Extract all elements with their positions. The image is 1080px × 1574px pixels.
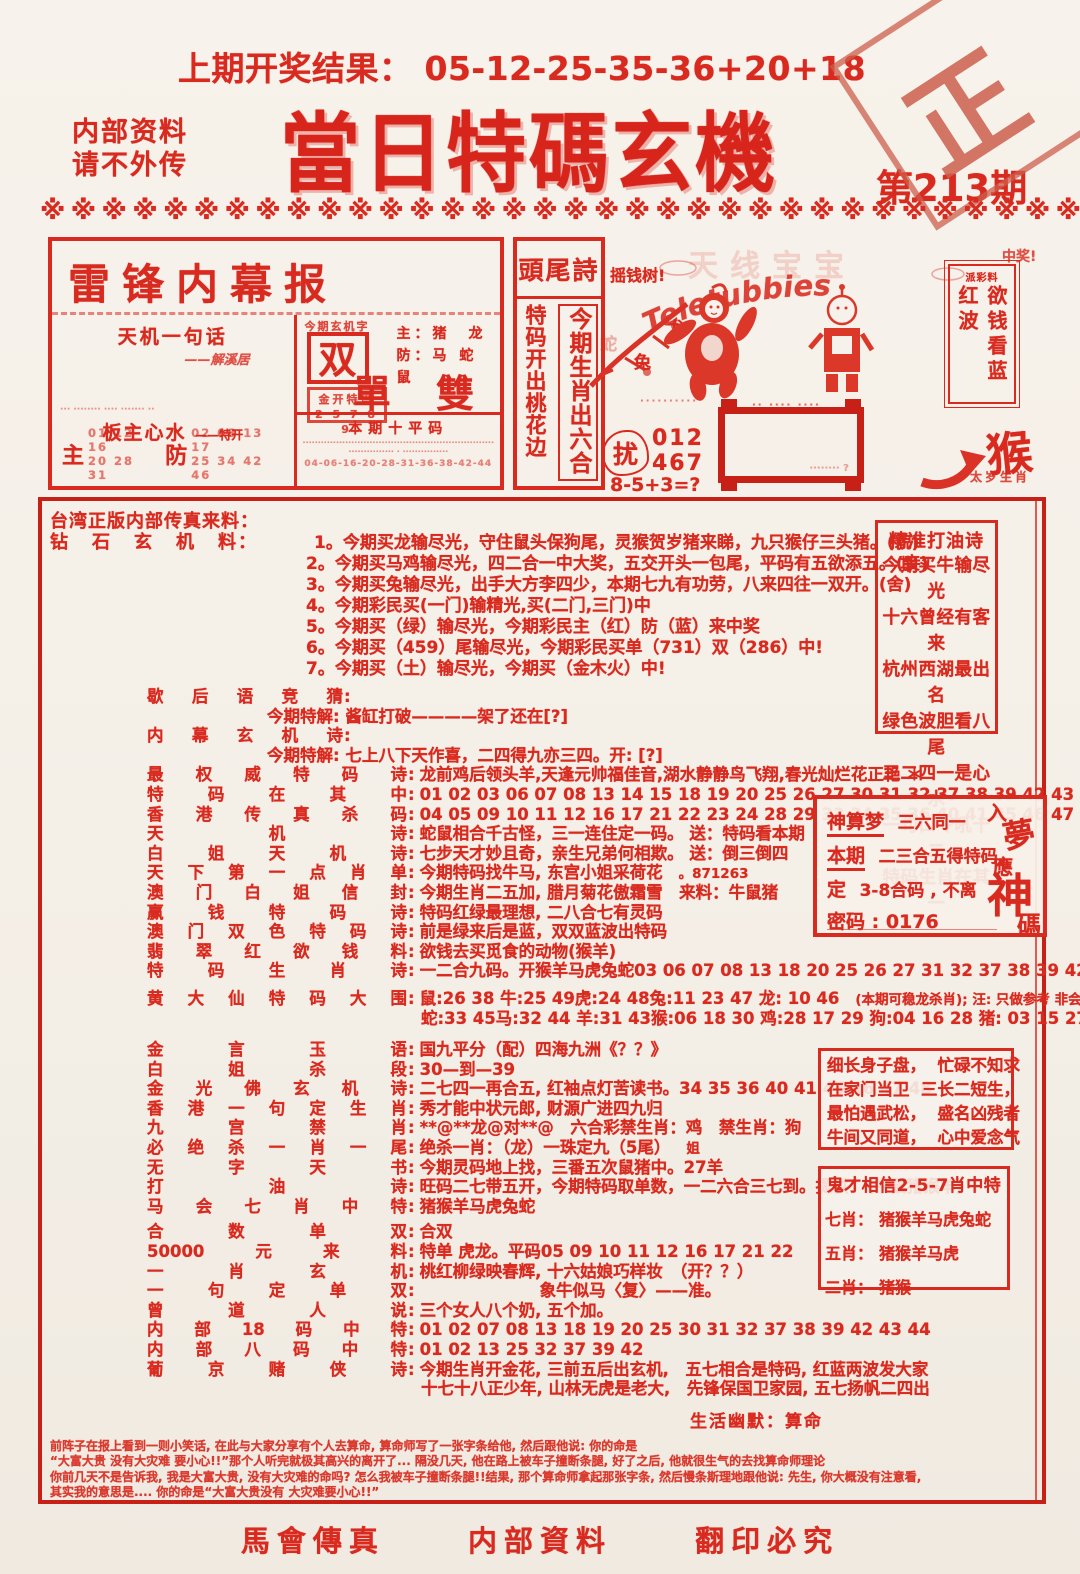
line-text: 十七十八正少年, 山林无虎是老大, 先锋保国卫家园, 五七扬帆二四出 xyxy=(421,1375,930,1399)
vertical-char: 碼 xyxy=(1017,913,1041,937)
line-text: 01 02 07 08 13 18 19 20 25 30 31 32 37 3… xyxy=(420,1320,931,1339)
riddle-poem-box: 细长身子盘， 忙碌不知求 在家门当卫 三长二短生， 最怕遇武松， 盛名凶残者 牛… xyxy=(818,1048,1014,1150)
confidential-line1: 内部资料 xyxy=(72,116,188,149)
ten-pingma-numbers: 04-06-16-20-28-31-36-38-42-44 xyxy=(297,459,500,469)
footer-slogan: 内部資料 xyxy=(468,1524,612,1558)
zhu-fang-numbers: 主 01 12 16 20 28 31 防 02 08 13 17 25 34 … xyxy=(62,426,294,482)
paicai-verse: 欲钱看蓝红波 xyxy=(953,285,1011,402)
vertical-char: 夢 xyxy=(1000,816,1037,853)
leifeng-title: 雷锋内幕报 xyxy=(52,241,500,312)
rao-numbers: 012 467 xyxy=(652,426,704,476)
second-teletubby xyxy=(810,284,872,392)
tip-sheet-page: 上期开奖结果： 05-12-25-35-36+20+18 内部资料 请不外传 當… xyxy=(0,0,1080,1574)
humor-line: 前阵子在报上看到一则小笑话, 在此与大家分享有个人去算命, 算命师写了一张字条给… xyxy=(50,1437,1030,1453)
branch-zodiac-char: 兔 xyxy=(634,348,651,373)
footer-slogan: 翻印必究 xyxy=(695,1524,839,1558)
ten-pingma-panel: 本期十平码 ··································… xyxy=(297,415,500,487)
jingzhun-line: 十六曾经有客来 xyxy=(878,605,995,657)
jingzhun-title: 精准打油诗 xyxy=(878,527,995,553)
head-tail-left-verse: 特码开出桃花边 xyxy=(520,304,550,481)
shensuan-benqi: 本期 xyxy=(827,845,865,871)
shensuan-title: 神算梦 xyxy=(827,811,884,837)
humor-heading: 生活幽默：算命 xyxy=(690,1407,1030,1432)
shensuan-subtitle: 三六同一 xyxy=(898,813,966,833)
diamond-label: 钻石玄机料 xyxy=(50,528,236,549)
prediction-line: 曾道人说: 三个女人八个奶, 五个加。 xyxy=(50,1297,1030,1317)
confidential-note: 内部资料 请不外传 xyxy=(72,116,188,182)
prediction-line: 特码生肖诗: 一二合九码。开猴羊马虎兔蛇03 06 07 08 13 18 20… xyxy=(50,957,1030,977)
riddle-line: 最怕遇武松， 盛名凶残者 xyxy=(827,1102,1005,1126)
jingzhun-line: 今期买牛输尽光 xyxy=(878,553,995,605)
tianji-panel: 天机一句话 ——解溪居 ··· ········ ···· ······· ··… xyxy=(52,315,297,487)
illegible-banner: ·········· xyxy=(640,396,698,407)
zhu-label: 主 xyxy=(62,438,84,470)
guicai-row-value: 猪猴羊马虎 xyxy=(879,1244,959,1263)
shensuan-ding-text: 3-8合码 , 不离 xyxy=(860,881,977,901)
guicai-row-label: 七肖： xyxy=(825,1210,873,1229)
humor-paragraph: 前阵子在报上看到一则小笑话, 在此与大家分享有个人去算命, 算命师写了一张字条给… xyxy=(50,1437,1030,1499)
head-tail-title: 頭尾詩 xyxy=(517,241,601,299)
ten-pingma-title: 本期十平码 xyxy=(297,418,500,438)
riddle-line: 在家门当卫 三长二短生， xyxy=(827,1078,1005,1102)
line-text: 蛇:33 45马:32 44 羊:31 43猴:06 18 30 鸡:28 17… xyxy=(421,1005,1080,1029)
diamond-item-1: 1。今期买龙输尽光，守住鼠头保狗尾，灵猴贺岁猪来睇，九只猴仔三头猪。(貌) xyxy=(314,528,919,549)
tianji-signature: ——解溪居 xyxy=(52,349,294,368)
fang-numbers: 02 08 13 17 25 34 42 46 xyxy=(191,426,285,482)
paicai-box: 派彩料 欲钱看蓝红波 xyxy=(948,264,1016,404)
riddle-line: 细长身子盘， 忙碌不知求 xyxy=(827,1054,1005,1078)
shensuan-dream-box: 神算梦 三六同一 本期 二三合五得特码, 定 3-8合码 , 不离 密码 : 0… xyxy=(813,795,1047,937)
teletubbies-figures xyxy=(652,282,892,404)
prediction-line: 黄大仙特码大围: 鼠:26 38 牛:25 49虎:24 48兔:11 23 4… xyxy=(50,985,1030,1005)
guicai-row: 五肖：猪猴羊马虎 xyxy=(825,1240,1003,1264)
ornament-divider: ※※※※※※※※※※※※※※※※※※※※※※※※※※※※※※※※※※※※ xyxy=(40,196,1080,226)
xuanji-panel: 今期玄机字 双 金开特玛 2 5 7 8 9 主：猪 龙 防：马 蛇 鼠 單 雙 xyxy=(297,315,500,415)
branch-zodiac-char: 蛇 xyxy=(600,330,617,355)
line-text: 龙前鸡后领头羊,天逢元帅福佳音,湖水静静鸟飞翔,春光灿烂花正艳 ＊ xyxy=(420,761,923,785)
jingzhun-poem-box: 精准打油诗 今期买牛输尽光 十六曾经有客来 杭州西湖最出名 绿色波胆看八尾 三二… xyxy=(875,520,998,734)
prediction-line: 葡京赌侠诗: 今期生肖开金花, 三前五后出玄机, 五七相合是特码, 红蓝两波发大… xyxy=(50,1356,1030,1376)
footer-slogan: 馬會傳真 xyxy=(241,1524,385,1558)
guicai-row-label: 二肖： xyxy=(825,1278,873,1297)
leifeng-report-box: 雷锋内幕报 天机一句话 ——解溪居 ··· ········ ···· ····… xyxy=(48,237,504,490)
shensuan-ding: 定 xyxy=(827,879,846,902)
illegible-smudge: ··············· · ··············· xyxy=(297,447,500,456)
jingzhun-line: 绿色波胆看八尾 xyxy=(878,709,995,761)
illegible-smudge: ········ ? xyxy=(809,463,849,474)
guicai-row-value: 猪猴羊马虎兔蛇 xyxy=(879,1210,991,1229)
line-label: 马会七肖中特 xyxy=(147,1193,407,1217)
guicai-row-label: 五肖： xyxy=(825,1244,873,1263)
humor-line: 其实我的意思是.... 你的命是“大富大贵没有 大灾难要小心!!” xyxy=(50,1483,1030,1499)
line-text: 一二合九码。开猴羊马虎兔蛇03 06 07 08 13 18 20 25 26 … xyxy=(420,957,1080,981)
line-label: 葡京赌侠诗 xyxy=(147,1356,407,1380)
guicai-row: 七肖：猪猴羊马虎兔蛇 xyxy=(825,1206,1003,1230)
dan-shuang: 單 雙 xyxy=(353,363,490,418)
cloud-icon xyxy=(660,261,696,275)
guicai-title: 鬼才相信2-5-7肖中特 xyxy=(825,1171,1003,1196)
formula-text: 8-5+3=? xyxy=(610,474,700,496)
illegible-smudge: ··· ········ ···· ······· ·· xyxy=(60,405,286,415)
line-text: 猪猴羊马虎兔蛇 xyxy=(420,1193,536,1217)
humor-line: 你前几天不是告诉我, 我是大富大贵, 没有大灾难的命吗? 怎么我被车子撞断条腿!… xyxy=(50,1468,1030,1484)
win-label: 中奖! xyxy=(1002,246,1036,266)
footer-slogans: 馬會傳真 内部資料 翻印必究 xyxy=(0,1518,1080,1560)
guicai-row-value: 猪猴 xyxy=(879,1278,911,1297)
confidential-line2: 请不外传 xyxy=(72,149,188,182)
riddle-line: 牛间又同道， 心中爱念气 xyxy=(827,1126,1005,1150)
empty-frame-box: ········ ? xyxy=(718,407,864,483)
line-text: 三个女人八个奶, 五个加。 xyxy=(420,1297,614,1321)
paicai-heading: 派彩料 xyxy=(966,269,999,284)
guicai-row: 二肖：猪猴 xyxy=(825,1274,1003,1298)
fang-label: 防 xyxy=(165,438,187,470)
line-label: 黄大仙特码大围 xyxy=(147,985,407,1009)
guicai-xiao-box: 鬼才相信2-5-7肖中特 七肖：猪猴羊马虎兔蛇 五肖：猪猴羊马虎 二肖：猪猴 xyxy=(818,1166,1010,1290)
humor-line: “大富大贵 没有大灾难 要小心!!”那个人听完就极其高兴的离开了... 隔没几天… xyxy=(50,1452,1030,1468)
previous-draw-result: 上期开奖结果： 05-12-25-35-36+20+18 xyxy=(178,42,866,90)
page-title: 當日特碼玄機 xyxy=(280,84,778,209)
monkey-caption: 太岁生肖 xyxy=(970,468,1030,485)
rao-cloud-label: 扰 xyxy=(602,430,649,476)
shensuan-benqi-text: 二三合五得特码, xyxy=(879,847,1004,867)
jingzhun-line: 杭州西湖最出名 xyxy=(878,657,995,709)
zhu-numbers: 01 12 16 20 28 31 xyxy=(88,426,157,482)
tianji-title: 天机一句话 xyxy=(52,322,294,349)
illegible-smudge: ········································… xyxy=(297,438,500,447)
prediction-line: 翡翠红欲钱料: 欲钱去买觅食的动物(猴羊) xyxy=(50,938,1030,958)
line-label: 特码生肖诗 xyxy=(147,957,407,981)
